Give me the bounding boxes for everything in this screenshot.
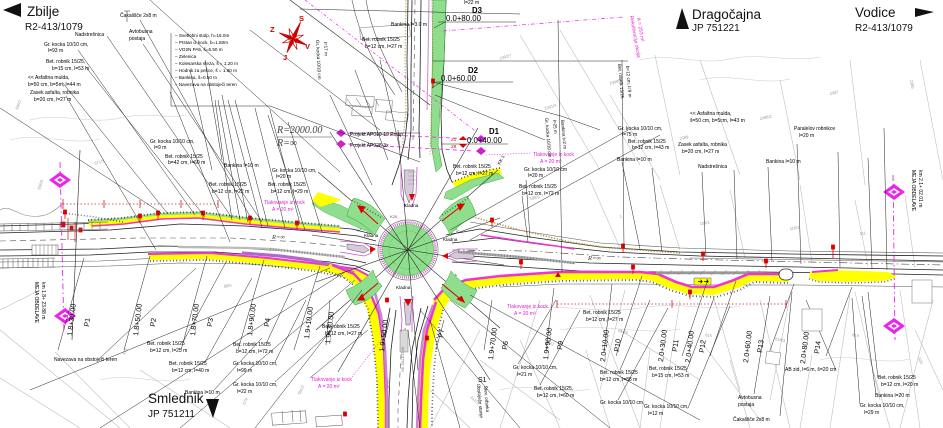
svg-text:Kladna: Kladna [396,285,411,290]
svg-text:b=12 cm, l=27 m: b=12 cm, l=27 m [325,331,362,337]
svg-text:b=12 cm, l=22 m: b=12 cm, l=22 m [212,189,249,195]
svg-text:b=42 cm, l=60 m: b=42 cm, l=60 m [168,160,205,166]
svg-text:Gr. kocka 10/10 cm,: Gr. kocka 10/10 cm, [860,403,904,409]
svg-text:– Navezava na obstoječi teren: – Navezava na obstoječi teren [175,82,237,87]
svg-text:– Prstan iz kock, b=1.50m: – Prstan iz kock, b=1.50m [175,40,228,45]
svg-text:K20: K20 [390,214,398,219]
svg-text:Avtobusna: Avtobusna [129,29,153,35]
svg-text:b=12 cm, l=72 m: b=12 cm, l=72 m [236,349,273,355]
svg-text:R=∞: R=∞ [587,255,601,262]
svg-text:Paralelov robnikov: Paralelov robnikov [794,126,836,132]
svg-text:P3: P3 [205,317,215,327]
svg-text:b=12 cm, l=27 m: b=12 cm, l=27 m [365,44,402,50]
svg-text:b=12 cm, l=20 m: b=12 cm, l=20 m [881,382,918,388]
svg-text:Bet. robnik 15/25: Bet. robnik 15/25 [453,164,491,170]
svg-text:Tlakovanje iz kock: Tlakovanje iz kock [533,152,574,158]
svg-text:P9: P9 [555,340,565,350]
svg-text:Gr. kocka 10/10 cm,: Gr. kocka 10/10 cm, [600,400,644,406]
svg-text:b=12 cm, l=40 m: b=12 cm, l=40 m [172,368,209,374]
svg-text:Zasek asfalta, robnika: Zasek asfalta, robnika [678,142,727,148]
svg-text:R=2000.00: R=2000.00 [276,125,322,136]
svg-text:Nadstrešnica: Nadstrešnica [698,164,727,170]
svg-text:0.0+60.00: 0.0+60.00 [441,74,477,83]
svg-text:– VO2N PA5, š=6.50 m: – VO2N PA5, š=6.50 m [175,47,223,52]
svg-text:l=17 m: l=17 m [323,42,329,56]
svg-text:– Zelenica: – Zelenica [175,54,197,59]
svg-text:l=20 m: l=20 m [528,173,543,179]
svg-text:P7: P7 [436,328,446,338]
svg-text:R=∞: R=∞ [276,138,297,149]
svg-text:A = 20 m²: A = 20 m² [272,207,294,213]
svg-text:Gr. kocka 10/10 cm,: Gr. kocka 10/10 cm, [644,404,688,410]
svg-text:21: 21 [451,137,457,143]
svg-text:l=22 m: l=22 m [237,389,252,395]
svg-text:Bet. robnik 15/25: Bet. robnik 15/25 [649,366,687,372]
svg-text:l=75 m: l=75 m [622,132,637,138]
svg-text:MEJA OBDELAVE: MEJA OBDELAVE [33,282,39,324]
svg-text:P6: P6 [500,340,510,350]
svg-text:– Svetlobni stolp, h=16.0m: – Svetlobni stolp, h=16.0m [175,33,229,38]
svg-text:b=20 cm, l=27 m: b=20 cm, l=27 m [682,149,719,155]
svg-text:– Kolesarska steza, š = 1.20 m: – Kolesarska steza, š = 1.20 m [175,61,238,66]
svg-text:Tlakovanje iz kock: Tlakovanje iz kock [507,304,548,310]
svg-text:Ob ZALEZNIK: Ob ZALEZNIK [400,346,405,372]
svg-text:Bet. robnik 15/25,: Bet. robnik 15/25, [46,59,85,65]
svg-text:JP 751211: JP 751211 [148,409,195,420]
svg-text:Bankina l=20 m: Bankina l=20 m [875,393,910,399]
svg-text:A = 20 m²: A = 20 m² [318,384,340,390]
svg-text:A = 20 m²: A = 20 m² [514,311,536,317]
svg-text:Kladna: Kladna [404,203,419,208]
svg-text:Bankina l=10 m: Bankina l=10 m [185,390,220,396]
svg-text:b=12 cm, l=25 m: b=12 cm, l=25 m [150,348,187,354]
svg-text:Čakališče 2x8 m: Čakališče 2x8 m [120,12,157,19]
svg-text:S: S [299,14,304,23]
svg-text:Čakališče 2x8 m: Čakališče 2x8 m [733,416,770,423]
svg-text:l=20 m: l=20 m [799,133,814,139]
svg-text:R250: R250 [386,378,391,388]
svg-text:Zasek asfalta, robnika: Zasek asfalta, robnika [30,90,79,96]
svg-text:Bet. robnik 15/25: Bet. robnik 15/25 [600,370,638,376]
svg-text:Bet. robnik 15/25: Bet. robnik 15/25 [583,310,621,316]
svg-text:Bet. robnik 15/25: Bet. robnik 15/25 [209,182,247,188]
svg-text:km 2.1+ 02.01 m: km 2.1+ 02.01 m [917,170,923,207]
svg-text:š=50 cm, b=5cm, l=43 m: š=50 cm, b=5cm, l=43 m [690,118,745,124]
svg-text:A = 20 m²: A = 20 m² [540,159,562,165]
svg-text:Bet. robnik 15/25: Bet. robnik 15/25 [147,341,185,347]
svg-text:l=29 m: l=29 m [864,410,879,416]
svg-text:Bet. robnik 15/25: Bet. robnik 15/25 [233,342,271,348]
svg-text:– Bankina, š=0.50 m: – Bankina, š=0.50 m [175,75,217,80]
svg-text:Gr. kocka 10/10 cm,: Gr. kocka 10/10 cm, [513,365,557,371]
svg-text:P10: P10 [612,338,622,352]
svg-text:P12: P12 [697,339,707,353]
svg-text:P13: P13 [755,339,765,353]
svg-text:R2-413/1079: R2-413/1079 [855,23,913,34]
svg-text:Tlakovanje iz kock: Tlakovanje iz kock [311,377,352,383]
svg-text:R=∞: R=∞ [271,234,285,241]
svg-text:b=12 cm, l=88 m: b=12 cm, l=88 m [600,377,637,383]
svg-text:b=12 cm, l=43 m: b=12 cm, l=43 m [632,145,669,151]
svg-text:km 1.8+ 23.88 m: km 1.8+ 23.88 m [40,282,46,319]
svg-text:b=15 cm, l=53 m: b=15 cm, l=53 m [52,66,89,72]
svg-text:Bankina l=3.0 m: Bankina l=3.0 m [391,22,427,28]
svg-text:Tlakovanje iz kock: Tlakovanje iz kock [264,200,305,206]
svg-text:l=20 m: l=20 m [276,174,291,180]
svg-text:V: V [305,42,310,51]
svg-text:b=12 cm, l=29 m: b=12 cm, l=29 m [271,189,308,195]
svg-text:JP 751221: JP 751221 [692,23,740,34]
svg-text:b=12 cm, l=72 m: b=12 cm, l=72 m [522,191,559,197]
svg-text:l=12 m: l=12 m [648,411,663,417]
svg-text:Bet. robnik 15/25: Bet. robnik 15/25 [268,182,306,188]
svg-text:Kladna: Kladna [364,233,379,238]
svg-text:Bankina l=10 m: Bankina l=10 m [224,163,259,169]
svg-text:Zbilje: Zbilje [27,4,59,19]
svg-text:P2: P2 [148,317,158,327]
svg-text:0.0+80.00: 0.0+80.00 [446,14,482,23]
svg-text:J: J [283,53,287,62]
svg-text:Gr. kocka 10/10 cm,: Gr. kocka 10/10 cm, [233,361,277,367]
svg-text:Avtobusna: Avtobusna [738,395,762,401]
svg-text:b=12 cm, l=27 m: b=12 cm, l=27 m [586,317,623,323]
svg-text:b=12 cm, l=27 m: b=12 cm, l=27 m [456,171,493,177]
svg-text:P11: P11 [670,339,680,352]
svg-text:postaja: postaja [738,402,754,408]
svg-text:l=9 m: l=9 m [154,145,166,151]
svg-text:l=99 m: l=99 m [237,368,252,374]
svg-text:Bankina l=10 m: Bankina l=10 m [617,157,652,163]
svg-text:b=15 cm, l=53 m: b=15 cm, l=53 m [652,373,689,379]
svg-text:l=22 m: l=22 m [464,0,479,6]
svg-text:b=12 cm, l=60 m: b=12 cm, l=60 m [537,393,574,399]
svg-text:Bet. robnik 15/25: Bet. robnik 15/25 [322,324,360,330]
svg-text:<< Asfaltna mulda,: << Asfaltna mulda, [28,75,69,81]
svg-text:P1: P1 [82,317,92,327]
svg-text:Bet. robnik 15/25: Bet. robnik 15/25 [169,361,207,367]
svg-text:Nadstrešnica: Nadstrešnica [75,32,104,38]
svg-text:Z: Z [270,25,275,34]
svg-text:P14: P14 [812,340,822,354]
svg-text:l=21 m: l=21 m [517,372,532,378]
svg-text:b=20 cm, l=27 m: b=20 cm, l=27 m [34,97,71,103]
svg-text:Dragočajna: Dragočajna [692,7,762,22]
svg-text:Gr. kocka 10/10 cm,: Gr. kocka 10/10 cm, [233,382,277,388]
svg-text:l=93 m: l=93 m [48,48,63,54]
svg-text:MEJA OBDELAVE: MEJA OBDELAVE [910,170,916,212]
svg-text:Bet. robnik 15/25: Bet. robnik 15/25 [878,375,916,381]
svg-text:Bankina l=10 m: Bankina l=10 m [766,159,801,165]
svg-text:AB zid, l=6 m, š=20 cm: AB zid, l=6 m, š=20 cm [785,367,836,373]
svg-text:Navezava na obstoječi teren: Navezava na obstoječi teren [54,357,117,363]
svg-text:– Hodnik za pešce, š = 1.60 m: – Hodnik za pešce, š = 1.60 m [175,68,237,73]
svg-text:b=50 cm, b=5m, l=44 m: b=50 cm, b=5m, l=44 m [28,82,81,88]
svg-text:Kladna: Kladna [443,237,458,242]
svg-text:postaja: postaja [129,36,145,42]
svg-text:28: 28 [451,144,457,150]
svg-text:Bet. robnik 15/25,: Bet. robnik 15/25, [534,386,573,392]
svg-text:0.0+40.00: 0.0+40.00 [467,136,503,145]
svg-text:<< Asfaltna mulda,: << Asfaltna mulda, [690,111,731,117]
svg-text:D1: D1 [489,127,500,136]
svg-text:Vodice: Vodice [855,5,896,20]
svg-text:Bet. robnik 15/25: Bet. robnik 15/25 [519,184,557,190]
svg-text:P4: P4 [262,317,272,327]
svg-text:Bet. robnik 15/25: Bet. robnik 15/25 [362,37,400,43]
